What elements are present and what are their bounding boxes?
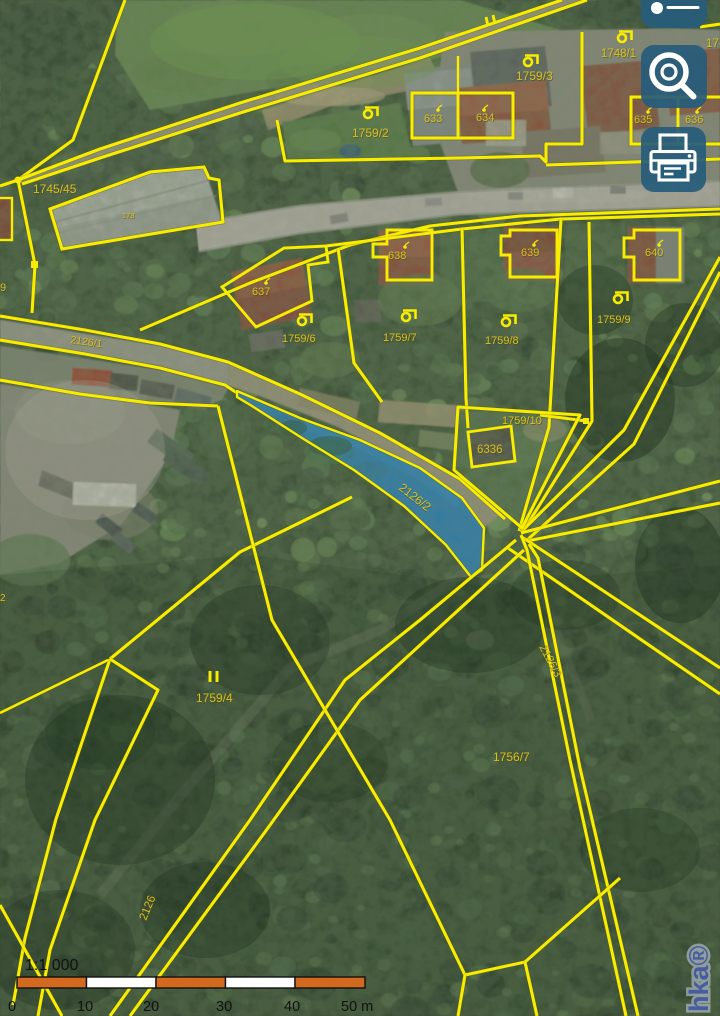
svg-text:2: 2	[0, 593, 6, 604]
svg-text:637: 637	[252, 286, 270, 298]
svg-text:30: 30	[216, 999, 232, 1015]
svg-text:1759/9: 1759/9	[597, 314, 631, 326]
svg-text:9: 9	[0, 282, 6, 294]
svg-text:1759/6: 1759/6	[282, 333, 316, 345]
svg-text:6336: 6336	[477, 444, 503, 456]
svg-text:1756/7: 1756/7	[493, 750, 530, 764]
svg-text:634: 634	[476, 112, 494, 124]
svg-text:1759/7: 1759/7	[383, 332, 417, 344]
svg-text:1:1 000: 1:1 000	[25, 957, 78, 974]
svg-text:1759/2: 1759/2	[352, 126, 389, 140]
svg-text:633: 633	[424, 113, 442, 125]
svg-text:635: 635	[634, 114, 652, 126]
svg-text:1759/8: 1759/8	[485, 335, 519, 347]
svg-text:1759/3: 1759/3	[516, 69, 553, 83]
svg-text:178: 178	[122, 211, 135, 220]
svg-text:1748/1: 1748/1	[601, 48, 636, 60]
svg-text:639: 639	[521, 247, 539, 259]
svg-text:636: 636	[685, 114, 703, 126]
svg-text:40: 40	[284, 999, 300, 1015]
svg-text:17: 17	[706, 38, 719, 50]
svg-text:640: 640	[645, 247, 663, 259]
svg-text:hka®: hka®	[684, 945, 714, 1012]
svg-text:0: 0	[8, 999, 16, 1015]
svg-text:20: 20	[143, 999, 159, 1015]
svg-text:1745/45: 1745/45	[33, 182, 77, 196]
svg-text:10: 10	[77, 999, 93, 1015]
svg-text:50 m: 50 m	[341, 999, 373, 1015]
svg-text:1759/10: 1759/10	[502, 415, 542, 427]
svg-text:638: 638	[388, 250, 406, 262]
svg-text:1759/4: 1759/4	[196, 691, 233, 705]
